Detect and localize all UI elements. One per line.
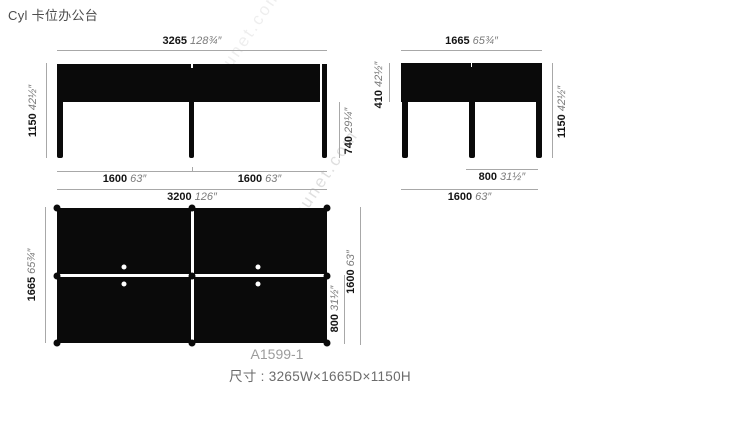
- dim-line: [552, 63, 553, 158]
- dim-inch: 126″: [195, 191, 217, 203]
- dim-front-width-top: 3265128¾″: [57, 35, 327, 47]
- dim-line: [401, 50, 542, 51]
- dim-inch: 42½″: [556, 86, 568, 111]
- front-leg-center: [189, 102, 195, 158]
- front-leg-right: [322, 102, 328, 158]
- dim-line: [389, 63, 390, 102]
- dim-front-bay-right: 160063″: [192, 173, 327, 185]
- dim-mm: 1150: [556, 114, 568, 138]
- joint-dot: [189, 340, 196, 347]
- side-leg-center: [469, 102, 475, 158]
- dim-inch: 31½″: [329, 286, 341, 311]
- dim-mm: 1600: [345, 269, 357, 293]
- dim-side-depth-bottom: 160063″: [401, 191, 538, 203]
- dim-plan-depth-left: 166565¾″: [26, 249, 38, 302]
- dim-inch: 42½″: [27, 85, 39, 110]
- dim-line: [45, 207, 46, 343]
- dim-line: [339, 102, 340, 158]
- dim-mm: 1600: [238, 173, 262, 185]
- dim-inch: 63″: [475, 191, 491, 203]
- dim-side-depth-top: 166565¾″: [401, 35, 542, 47]
- dim-inch: 42½″: [373, 62, 385, 87]
- panel-center-seam: [191, 64, 193, 68]
- dim-mm: 410: [373, 90, 385, 108]
- grommet-dot: [256, 265, 261, 270]
- dim-inch: 65¾″: [26, 249, 38, 274]
- dim-front-desk-height: 74029¼″: [343, 108, 355, 155]
- panel-center-seam: [471, 63, 473, 67]
- joint-dot: [324, 205, 331, 212]
- grommet-dot: [256, 282, 261, 287]
- panel-end-seam: [320, 64, 322, 102]
- dim-inch: 128¾″: [190, 35, 221, 47]
- side-leg-rear: [536, 102, 542, 158]
- dim-mm: 1600: [103, 173, 127, 185]
- page-title: Cyl 卡位办公台: [8, 5, 98, 24]
- front-leg-left: [57, 102, 63, 158]
- joint-dot: [54, 340, 61, 347]
- joint-dot: [189, 272, 196, 279]
- dim-line: [360, 207, 361, 345]
- dim-side-seat-depth: 80031½″: [457, 171, 547, 183]
- side-leg-front: [402, 102, 408, 158]
- dim-line: [57, 189, 327, 190]
- dim-inch: 65¾″: [473, 35, 498, 47]
- dim-front-height-left: 115042½″: [27, 85, 39, 137]
- dim-mm: 800: [329, 314, 341, 332]
- dim-line: [466, 169, 538, 170]
- dim-plan-half-depth: 80031½″: [329, 286, 341, 333]
- dim-inch: 63″: [265, 173, 281, 185]
- joint-dot: [189, 205, 196, 212]
- joint-dot: [324, 272, 331, 279]
- dim-mm: 740: [343, 136, 355, 154]
- dim-mm: 1600: [448, 191, 472, 203]
- grommet-dot: [122, 265, 127, 270]
- dim-mm: 1665: [445, 35, 469, 47]
- dim-inch: 31½″: [500, 171, 525, 183]
- dim-inch: 63″: [130, 173, 146, 185]
- model-code: A1599-1: [197, 346, 357, 362]
- spec-sheet: Cyl 卡位办公台 snsunet.com snsunet.com 326512…: [0, 0, 750, 427]
- grommet-dot: [122, 282, 127, 287]
- dim-plan-depth-right: 160063″: [345, 250, 357, 294]
- dim-tick: [192, 167, 193, 172]
- dim-line: [57, 50, 327, 51]
- dim-side-screen-height: 41042½″: [373, 62, 385, 109]
- dim-mm: 1665: [26, 277, 38, 301]
- dim-mm: 800: [479, 171, 497, 183]
- dim-front-width-bottom: 3200126″: [57, 191, 327, 203]
- dim-front-bay-left: 160063″: [57, 173, 192, 185]
- dim-line: [46, 63, 47, 158]
- dim-mm: 1150: [27, 113, 39, 137]
- dim-line: [401, 189, 538, 190]
- front-screen-panel: [57, 64, 327, 102]
- overall-size-label: 尺寸 : 3265W×1665D×1150H: [120, 365, 520, 385]
- side-screen-panel: [401, 63, 542, 102]
- dim-inch: 29¼″: [343, 108, 355, 133]
- dim-mm: 3265: [163, 35, 187, 47]
- dim-inch: 63″: [345, 250, 357, 266]
- joint-dot: [54, 205, 61, 212]
- dim-side-height-right: 115042½″: [556, 86, 568, 138]
- dim-mm: 3200: [167, 191, 191, 203]
- joint-dot: [54, 272, 61, 279]
